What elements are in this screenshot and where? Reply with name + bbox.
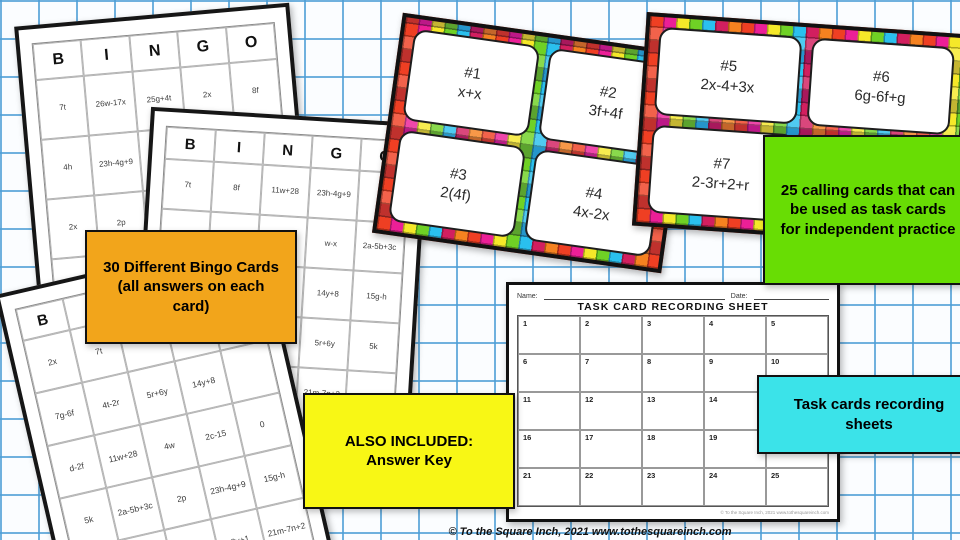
recording-cell: 23 [642,468,704,506]
bingo-cell: 5r+6y [299,317,351,370]
task-card: #3 2(4f) [388,130,527,239]
bingo-cell: 7t [36,76,89,140]
bingo-header-letter: I [214,130,265,165]
answer-key-callout: ALSO INCLUDED: Answer Key [303,393,515,509]
recording-sheet-header: Name: Date: [517,291,829,300]
task-card-expression: x+x [457,83,483,103]
date-label: Date: [731,293,748,300]
recording-cell: 3 [642,316,704,354]
task-card: #1 x+x [402,29,541,138]
bingo-cell: 26w-17x [84,72,137,136]
bingo-cell: 8f [211,162,263,215]
task-card: #5 2x-4+3x [654,27,803,125]
recording-cell: 18 [642,430,704,468]
bingo-header-letter: B [165,127,216,162]
name-blank-line [544,291,725,300]
recording-cell: 25 [766,468,828,506]
task-card-expression: 3f+4f [588,101,624,123]
recording-cell: 22 [580,468,642,506]
recording-cell: 2 [580,316,642,354]
recording-cell: 17 [580,430,642,468]
graph-paper-background: BINGO 7t26w-17x25g+4t2x8f4h23h-4g+915g-h… [0,0,960,540]
task-card-number: #7 [713,155,731,173]
task-card-expression: 2-3r+2+r [691,173,750,194]
recording-cell: 21 [518,468,580,506]
task-card-expression: 4x-2x [572,202,611,224]
recording-sheets-callout: Task cards recording sheets [757,375,960,454]
bingo-cell: 23h-4g+9 [308,168,360,221]
bingo-header-letter: N [262,133,313,168]
bingo-cell: 23h-4g+9 [89,131,142,195]
task-card-expression: 2(4f) [439,183,472,204]
name-label: Name: [517,293,538,300]
bingo-header-letter: G [311,136,362,171]
date-blank-line [754,291,829,300]
bingo-cell: w-x [305,218,357,271]
bingo-cell: 5k [348,320,400,373]
calling-cards-callout: 25 calling cards that can be used as tas… [763,135,960,285]
task-card-expression: 2x-4+3x [700,75,755,96]
recording-cell: 1 [518,316,580,354]
bingo-cell: 14y+8 [302,268,354,321]
recording-cell: 11 [518,392,580,430]
bingo-header-letter: I [81,36,132,76]
recording-cell: 16 [518,430,580,468]
task-card-number: #4 [585,184,604,203]
recording-cell: 13 [642,392,704,430]
bingo-cell: 15g-h [351,270,403,323]
bingo-cell: 7t [162,159,214,212]
copyright-text: © To the Square Inch, 2021 www.tothesqua… [330,526,850,538]
task-card: #6 6g-6f+g [806,38,955,136]
recording-sheet-title: TASK CARD RECORDING SHEET [517,301,829,313]
task-card-expression: 6g-6f+g [854,86,906,107]
recording-cell: 4 [704,316,766,354]
task-card-number: #5 [720,57,738,75]
task-card-number: #3 [449,164,468,183]
bingo-header-letter: B [33,40,84,80]
bingo-header-letter: N [129,32,180,72]
answer-key-line1: ALSO INCLUDED: [345,432,473,452]
task-card-number: #6 [873,67,891,85]
recording-cell: 5 [766,316,828,354]
recording-sheet-footer: © To the Square Inch, 2021 www.tothesqua… [517,510,829,515]
bingo-header-letter: O [226,23,277,63]
recording-cell: 6 [518,354,580,392]
bingo-cell: 11w+28 [259,165,311,218]
recording-cell: 7 [580,354,642,392]
task-card-number: #1 [463,63,482,82]
task-card-number: #2 [599,83,618,102]
recording-cell: 12 [580,392,642,430]
answer-key-line2: Answer Key [366,451,452,471]
bingo-cell: 4h [41,136,94,200]
recording-cell: 8 [642,354,704,392]
bingo-cards-callout: 30 Different Bingo Cards (all answers on… [85,230,297,344]
recording-cell: 24 [704,468,766,506]
bingo-header-letter: G [177,27,228,67]
